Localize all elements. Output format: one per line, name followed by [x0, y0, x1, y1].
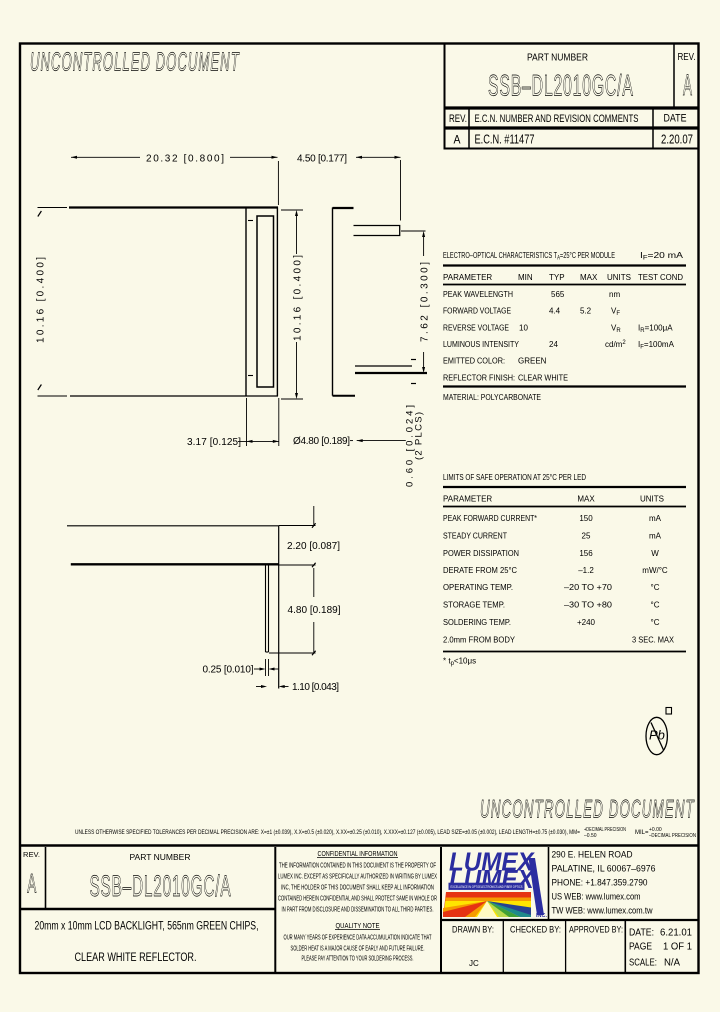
svg-text:REVERSE VOLTAGE: REVERSE VOLTAGE: [443, 323, 509, 332]
svg-text:DATE: DATE: [664, 113, 687, 125]
svg-text:LUMINOUS INTENSITY: LUMINOUS INTENSITY: [443, 340, 520, 349]
svg-text:UNCONTROLLED DOCUMENT: UNCONTROLLED DOCUMENT: [480, 796, 695, 823]
svg-text:DERATE FROM 25°C: DERATE FROM 25°C: [443, 566, 517, 575]
svg-text:565: 565: [551, 290, 565, 299]
svg-text:UNITS: UNITS: [640, 495, 664, 504]
svg-text:156: 156: [579, 549, 593, 558]
svg-text:THE INFORMATION CONTAINED IN T: THE INFORMATION CONTAINED IN THIS DOCUME…: [279, 861, 436, 870]
svg-text:REV.: REV.: [449, 113, 467, 125]
svg-text:POWER DISSIPATION: POWER DISSIPATION: [443, 549, 519, 558]
svg-text:LUMEX INC. EXCEPT AS SPECIFIC: LUMEX INC. EXCEPT AS SPECIFICALLY AUTHOR…: [278, 872, 437, 881]
svg-text:mA: mA: [649, 514, 662, 523]
svg-text:4.4: 4.4: [549, 307, 561, 316]
svg-text:TEST COND: TEST COND: [638, 273, 683, 282]
svg-text:°C: °C: [651, 583, 660, 592]
svg-text:CLEAR WHITE: CLEAR WHITE: [518, 373, 568, 382]
svg-text:DATE:: DATE:: [629, 927, 654, 939]
svg-text:MIN: MIN: [518, 273, 533, 282]
svg-text:MAX: MAX: [577, 495, 595, 504]
svg-text:mW/°C: mW/°C: [642, 566, 668, 575]
svg-text:150: 150: [579, 514, 593, 523]
svg-text:10: 10: [519, 323, 528, 332]
svg-text:290 E. HELEN ROAD: 290 E. HELEN ROAD: [552, 850, 633, 861]
svg-text:N/A: N/A: [664, 957, 680, 969]
svg-text:Pb: Pb: [649, 728, 665, 743]
svg-text:IF=20 mA: IF=20 mA: [640, 251, 684, 262]
svg-text:1.10 [0.043]: 1.10 [0.043]: [292, 682, 339, 693]
svg-text:SSB–DL2010GC/A: SSB–DL2010GC/A: [90, 870, 232, 904]
svg-text:PARAMETER: PARAMETER: [443, 495, 492, 504]
svg-text:mA: mA: [649, 532, 662, 541]
svg-text:UNITS: UNITS: [607, 273, 631, 282]
svg-text:PEAK FORWARD CURRENT*: PEAK FORWARD CURRENT*: [443, 514, 537, 523]
svg-text:QUALITY NOTE: QUALITY NOTE: [336, 921, 380, 930]
svg-text:DRAWN BY:: DRAWN BY:: [452, 925, 494, 936]
svg-text:Ø4.80 [0.189]: Ø4.80 [0.189]: [293, 436, 350, 447]
svg-text:REV.: REV.: [23, 850, 40, 859]
svg-text:TW WEB: www.lumex.com.tw: TW WEB: www.lumex.com.tw: [552, 906, 653, 917]
svg-text:2.0mm FROM BODY: 2.0mm FROM BODY: [443, 636, 516, 645]
svg-text:LIMITS OF SAFE OPERATION AT 25: LIMITS OF SAFE OPERATION AT 25°C PER LED: [443, 473, 586, 482]
svg-text:SOLDERING TEMP.: SOLDERING TEMP.: [443, 618, 511, 627]
svg-text:25: 25: [582, 532, 591, 541]
svg-text:SCALE:: SCALE:: [629, 957, 657, 969]
svg-text:–20 TO +70: –20 TO +70: [564, 583, 613, 592]
svg-text:US WEB: www.lumex.com: US WEB: www.lumex.com: [552, 892, 641, 903]
svg-text:REV.: REV.: [678, 51, 696, 63]
svg-text:–DECIMAL PRECISION: –DECIMAL PRECISION: [649, 833, 696, 839]
svg-text:2.20 [0.087]: 2.20 [0.087]: [287, 541, 340, 552]
svg-text:2.20.07: 2.20.07: [661, 133, 693, 147]
svg-text:EMITTED COLOR:: EMITTED COLOR:: [443, 357, 505, 366]
svg-text:PARAMETER: PARAMETER: [443, 273, 492, 282]
svg-text:PEAK WAVELENGTH: PEAK WAVELENGTH: [443, 290, 513, 299]
svg-text:MAX: MAX: [580, 273, 598, 282]
svg-text:ELECTRO–OPTICAL CHARACTERISTIC: ELECTRO–OPTICAL CHARACTERISTICS TA=25°C …: [443, 251, 615, 262]
svg-text:PART NUMBER: PART NUMBER: [527, 52, 588, 64]
svg-text:3 SEC. MAX: 3 SEC. MAX: [632, 636, 675, 645]
svg-text:EXCELLENCE IN OPTOELECTRONICS: EXCELLENCE IN OPTOELECTRONICS AND FIBER …: [451, 884, 523, 889]
svg-text:PALATINE, IL 60067–6976: PALATINE, IL 60067–6976: [552, 864, 656, 875]
svg-text:UNLESS OTHERWISE SPECIFIED TOL: UNLESS OTHERWISE SPECIFIED TOLERANCES PE…: [75, 830, 580, 836]
svg-text:* tp<10μs: * tp<10μs: [443, 657, 476, 668]
svg-text:–0.50: –0.50: [584, 833, 597, 839]
svg-text:3.17 [0.125]: 3.17 [0.125]: [187, 437, 241, 448]
svg-text:+240: +240: [577, 618, 596, 627]
svg-text:INC, THE HOLDER OF THIS DOCUME: INC, THE HOLDER OF THIS DOCUMENT SHALL K…: [281, 883, 434, 892]
svg-text:CHECKED BY:: CHECKED BY:: [510, 925, 561, 936]
svg-text:PHONE: +1.847.359.2790: PHONE: +1.847.359.2790: [552, 878, 648, 889]
svg-text:MIL=: MIL=: [635, 830, 649, 836]
svg-text:–1.2: –1.2: [578, 566, 594, 575]
svg-text:OUR MANY YEARS OF EXPERIENCE D: OUR MANY YEARS OF EXPERIENCE DATA ACCUMU…: [284, 933, 432, 942]
svg-text:CONFIDENTIAL INFORMATION: CONFIDENTIAL INFORMATION: [318, 849, 398, 858]
svg-text:nm: nm: [609, 290, 620, 299]
svg-text:STEADY CURRENT: STEADY CURRENT: [443, 532, 507, 541]
svg-text:IN PART FROM DISCLOSURE AND DI: IN PART FROM DISCLOSURE AND DISSEMINATIO…: [282, 905, 434, 914]
svg-text:OPERATING TEMP.: OPERATING TEMP.: [443, 583, 513, 592]
svg-text:STORAGE TEMP.: STORAGE TEMP.: [443, 601, 505, 610]
svg-text:4.80 [0.189]: 4.80 [0.189]: [288, 605, 341, 616]
svg-text:–30 TO +80: –30 TO +80: [564, 601, 613, 610]
svg-text:1 OF 1: 1 OF 1: [663, 941, 692, 953]
svg-text:FORWARD VOLTAGE: FORWARD VOLTAGE: [443, 307, 511, 316]
svg-text:5.2: 5.2: [580, 307, 592, 316]
svg-text:PLEASE PAY ATTENTION TO YOUR S: PLEASE PAY ATTENTION TO YOUR SOLDERING P…: [302, 954, 414, 963]
svg-text:TYP: TYP: [549, 273, 565, 282]
svg-text:A: A: [27, 868, 36, 898]
svg-text:W: W: [651, 549, 659, 558]
svg-text:°C: °C: [651, 618, 660, 627]
svg-text:JC: JC: [469, 959, 479, 968]
svg-text:CONTAINED HEREIN CONFIDENTIAL: CONTAINED HEREIN CONFIDENTIAL AND SHALL …: [278, 894, 437, 903]
svg-text:A: A: [683, 68, 692, 102]
svg-text:6.21.01: 6.21.01: [660, 927, 692, 939]
svg-text:24: 24: [549, 340, 558, 349]
svg-text:INC.: INC.: [536, 913, 547, 919]
svg-text:SSB–DL2010GC/A: SSB–DL2010GC/A: [488, 69, 634, 103]
svg-text:20mm x 10mm LCD BACKLIGHT, 565: 20mm x 10mm LCD BACKLIGHT, 565nm GREEN C…: [35, 921, 259, 933]
svg-text:APPROVED BY:: APPROVED BY:: [569, 925, 623, 936]
svg-text:0.25 [0.010]: 0.25 [0.010]: [203, 665, 254, 676]
svg-text:4.50 [0.177]: 4.50 [0.177]: [297, 154, 347, 165]
svg-text:REFLECTOR FINISH:: REFLECTOR FINISH:: [443, 373, 515, 382]
svg-text:PART NUMBER: PART NUMBER: [130, 853, 191, 862]
svg-text:CLEAR WHITE REFLECTOR.: CLEAR WHITE REFLECTOR.: [75, 952, 197, 964]
svg-text:°C: °C: [651, 601, 660, 610]
svg-text:MATERIAL: POLYCARBONATE: MATERIAL: POLYCARBONATE: [443, 393, 541, 402]
svg-text:A: A: [454, 133, 461, 147]
svg-text:SOLDER HEAT IS A MAJOR CAUSE O: SOLDER HEAT IS A MAJOR CAUSE OF EARLY AN…: [291, 944, 425, 953]
svg-text:IF=100mA: IF=100mA: [638, 340, 675, 351]
svg-text:E.C.N. #11477: E.C.N. #11477: [475, 133, 535, 147]
svg-text:PAGE: PAGE: [629, 941, 652, 953]
svg-text:(2 PLCS): (2 PLCS): [414, 412, 425, 460]
svg-text:GREEN: GREEN: [518, 357, 547, 366]
svg-text:E.C.N. NUMBER AND REVISION COM: E.C.N. NUMBER AND REVISION COMMENTS: [475, 113, 639, 125]
svg-text:UNCONTROLLED DOCUMENT: UNCONTROLLED DOCUMENT: [30, 48, 240, 77]
